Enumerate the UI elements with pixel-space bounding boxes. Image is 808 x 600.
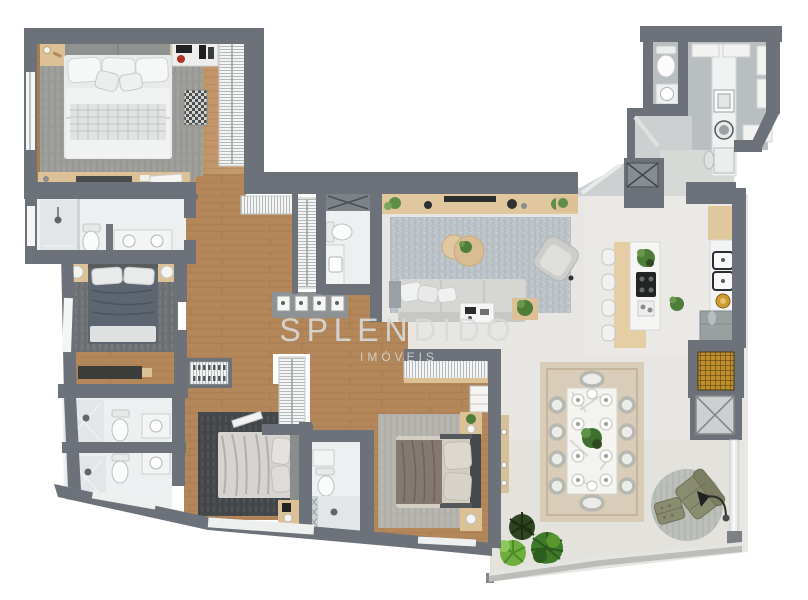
svg-text:IMÓVEIS: IMÓVEIS bbox=[360, 349, 438, 364]
svg-text:SPLENDIDO: SPLENDIDO bbox=[279, 312, 516, 348]
